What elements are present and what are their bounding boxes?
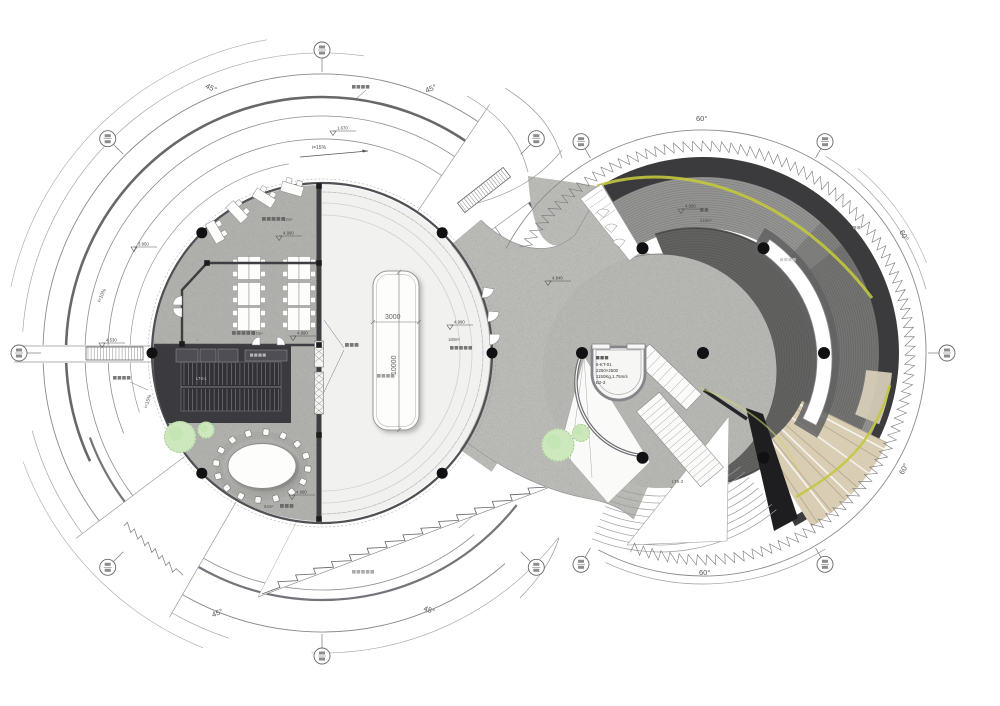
svg-text:60°: 60° (699, 568, 710, 577)
svg-text:4.990: 4.990 (297, 331, 308, 336)
svg-text:57m²: 57m² (253, 331, 263, 336)
svg-text:LT6-2: LT6-2 (672, 479, 684, 484)
svg-text:4.000: 4.000 (685, 204, 696, 209)
svg-text:64m²: 64m² (264, 504, 274, 509)
svg-text:32m²: 32m² (283, 217, 293, 222)
svg-text:60°: 60° (696, 114, 707, 123)
svg-text:4.530: 4.530 (106, 338, 117, 343)
svg-text:4.990: 4.990 (296, 490, 307, 495)
svg-text:4.990: 4.990 (454, 320, 465, 325)
svg-text:6-KT-01: 6-KT-01 (596, 362, 612, 367)
svg-text:B2-3: B2-3 (596, 380, 606, 385)
svg-text:218m²: 218m² (700, 218, 712, 223)
svg-text:4.990: 4.990 (283, 231, 294, 236)
svg-text:10000: 10000 (391, 355, 398, 375)
svg-text:2250×2500: 2250×2500 (596, 368, 619, 373)
svg-text:i=15%: i=15% (312, 145, 327, 151)
svg-text:180m²: 180m² (448, 337, 460, 342)
svg-text:LT6-1: LT6-1 (196, 376, 207, 381)
svg-text:3000: 3000 (385, 314, 401, 321)
svg-text:↓: ↓ (196, 337, 198, 342)
svg-text:1.670: 1.670 (337, 126, 348, 131)
svg-text:3.950: 3.950 (138, 242, 149, 247)
svg-text:4.940: 4.940 (552, 276, 563, 281)
svg-text:1150Kg,1.75m/s: 1150Kg,1.75m/s (596, 374, 628, 379)
